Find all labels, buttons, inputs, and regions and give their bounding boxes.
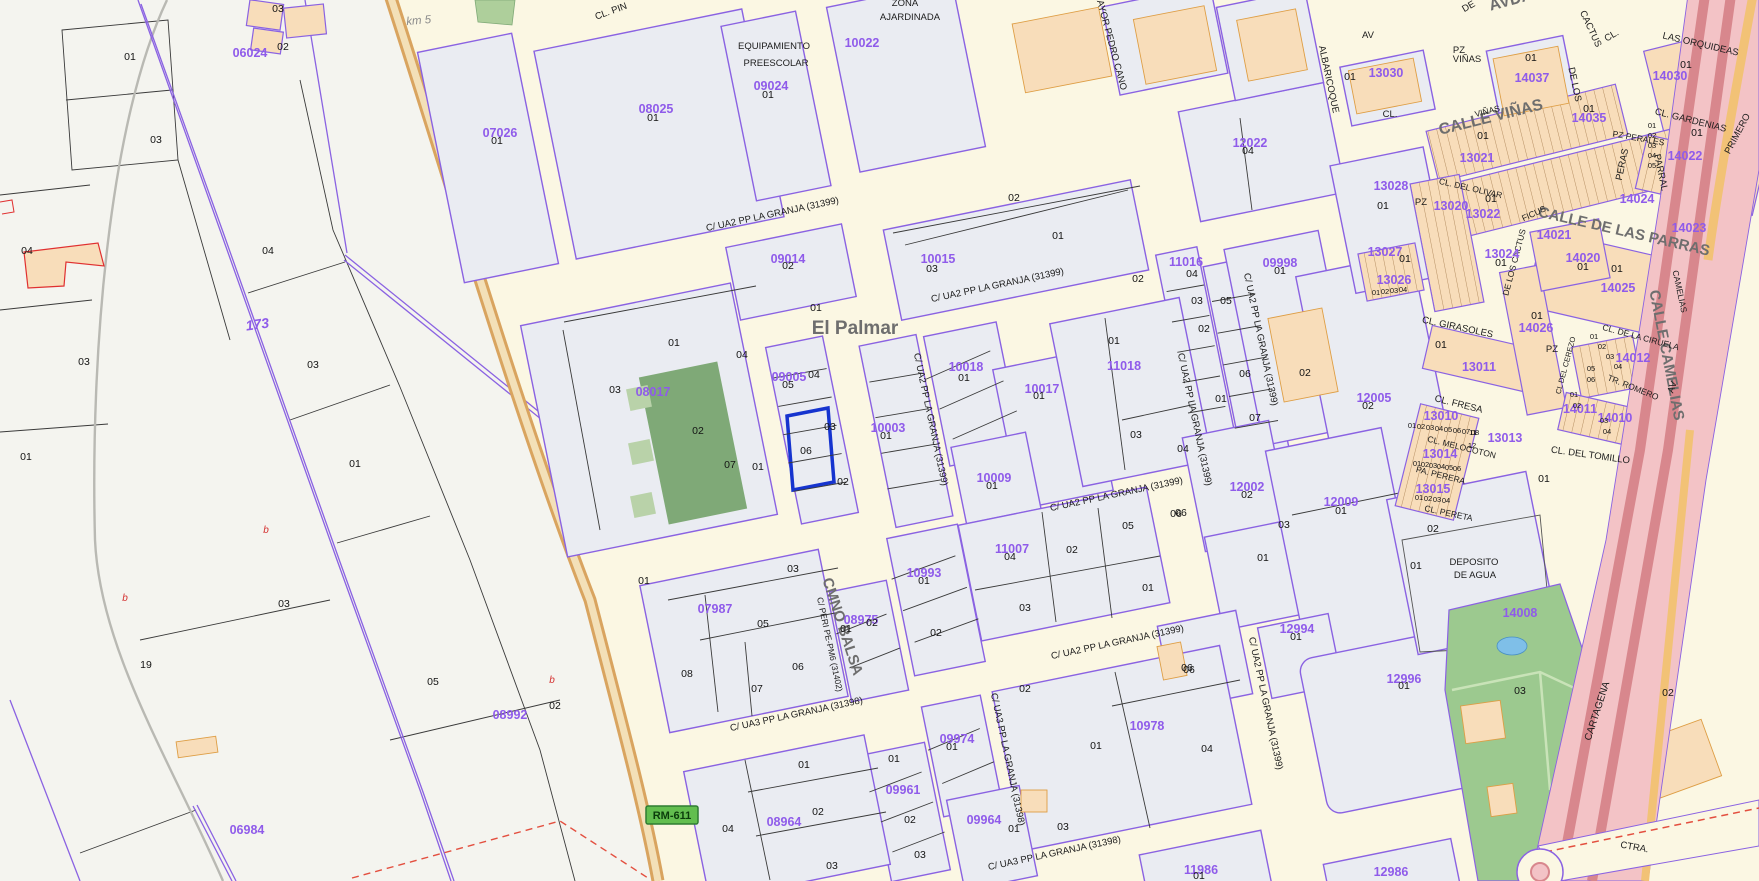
parcel-number-small-05[interactable]: 05 — [1587, 364, 1595, 373]
parcel-number-01[interactable]: 01 — [20, 451, 32, 463]
parcel-number-small-03[interactable]: 03 — [1390, 286, 1398, 295]
major-place-label-el-palmar: El Palmar — [812, 318, 899, 339]
parcel-number-06[interactable]: 06 — [1239, 368, 1251, 380]
block-code-label-08017[interactable]: 08017 — [636, 385, 671, 399]
parcel-number-08[interactable]: 08 — [681, 668, 693, 680]
block-code-label-13013[interactable]: 13013 — [1488, 431, 1523, 445]
block-code-label-14008[interactable]: 14008 — [1503, 606, 1538, 620]
parcel-number-small-06[interactable]: 06 — [1453, 464, 1461, 473]
block-code-label-08992[interactable]: 08992 — [493, 708, 528, 722]
block-code-label-09964[interactable]: 09964 — [967, 813, 1002, 827]
parcel-number-02[interactable]: 02 — [1299, 367, 1311, 379]
parcel-number-04[interactable]: 04 — [1177, 443, 1189, 455]
parcel-number-05[interactable]: 05 — [782, 379, 794, 391]
parcel-number-04[interactable]: 04 — [21, 245, 33, 257]
block-code-label-13028[interactable]: 13028 — [1374, 179, 1409, 193]
parcel-number-01[interactable]: 01 — [880, 430, 892, 442]
parcel-number-01[interactable]: 01 — [1008, 823, 1020, 835]
parcel-number-small-03[interactable]: 03 — [1600, 416, 1608, 425]
street-label-pz: PZ — [1415, 197, 1427, 208]
parcel-number-03[interactable]: 03 — [307, 359, 319, 371]
parcel-number-small-04[interactable]: 04 — [1399, 285, 1407, 294]
parcel-number-02[interactable]: 02 — [692, 425, 704, 437]
block-code-label-13014[interactable]: 13014 — [1423, 447, 1458, 461]
road-badge-rm611: RM-611 — [646, 806, 698, 824]
parcel-number-01[interactable]: 01 — [1691, 127, 1703, 139]
green-areas — [475, 0, 515, 25]
parcel-number-small-01[interactable]: 01 — [1372, 288, 1380, 297]
parcel-number-01[interactable]: 01 — [810, 302, 822, 314]
parcel-number-01[interactable]: 01 — [1531, 310, 1543, 322]
parcel-number-06[interactable]: 06 — [1181, 662, 1193, 674]
block-code-label-14037[interactable]: 14037 — [1515, 71, 1550, 85]
parcel-number-01[interactable]: 01 — [1538, 473, 1550, 485]
block-code-label-11016[interactable]: 11016 — [1169, 255, 1203, 269]
parcel-number-02[interactable]: 02 — [1066, 544, 1078, 556]
street-label-vi-as: VIÑAS — [1453, 54, 1482, 65]
parcel-number-small-05[interactable]: 05 — [1648, 161, 1656, 170]
parcel-number-01[interactable]: 01 — [1611, 263, 1623, 275]
parcel-number-01[interactable]: 01 — [1257, 552, 1269, 564]
parcel-number-01[interactable]: 01 — [1290, 631, 1302, 643]
street-label-ajardinada: AJARDINADA — [880, 12, 941, 23]
parcel-number-01[interactable]: 01 — [638, 575, 650, 587]
parcel-number-03[interactable]: 03 — [1019, 602, 1031, 614]
parcel-number-small-03[interactable]: 03 — [1426, 423, 1434, 432]
parcel-number-04[interactable]: 04 — [808, 369, 820, 381]
parcel-number-01[interactable]: 01 — [1577, 261, 1589, 273]
parcel-number-05[interactable]: 05 — [1122, 520, 1134, 532]
block-code-label-13010[interactable]: 13010 — [1424, 409, 1459, 423]
parcel-number-01[interactable]: 01 — [1495, 257, 1507, 269]
block-code-label-14023[interactable]: 14023 — [1672, 221, 1707, 235]
block-code-label-13030[interactable]: 13030 — [1369, 66, 1404, 80]
block-code-label-14021[interactable]: 14021 — [1537, 228, 1572, 242]
map-annotation-b: b — [263, 525, 269, 536]
block-code-label-14024[interactable]: 14024 — [1620, 192, 1655, 206]
parcel-number-02[interactable]: 02 — [837, 476, 849, 488]
parcel-number-02[interactable]: 02 — [1362, 400, 1374, 412]
parcel-number-01[interactable]: 01 — [762, 89, 774, 101]
street-label-deposito: DEPOSITO — [1450, 557, 1499, 568]
street-label-cl-: CL. — [1383, 109, 1398, 120]
parcel-number-02[interactable]: 02 — [1008, 192, 1020, 204]
parcel-number-02[interactable]: 02 — [782, 260, 794, 272]
parcel-number-02[interactable]: 02 — [1662, 687, 1674, 699]
parcel-number-small-01[interactable]: 01 — [1648, 121, 1656, 130]
parcel-number-small-01[interactable]: 01 — [1590, 332, 1598, 341]
parcel-number-small-02[interactable]: 02 — [1417, 422, 1425, 431]
block-code-label-13021[interactable]: 13021 — [1460, 151, 1495, 165]
parcel-number-03[interactable]: 03 — [1278, 519, 1290, 531]
parcel-number-01[interactable]: 01 — [1399, 253, 1411, 265]
parcel-number-small-05[interactable]: 05 — [1444, 425, 1452, 434]
parcel-number-02[interactable]: 02 — [866, 617, 878, 629]
parcel-number-01[interactable]: 01 — [124, 51, 136, 63]
street-label-equipamiento: EQUIPAMIENTO — [738, 41, 810, 52]
block-code-label-13022[interactable]: 13022 — [1466, 207, 1501, 221]
parcel-number-01[interactable]: 01 — [1033, 390, 1045, 402]
parcel-number-06[interactable]: 06 — [792, 661, 804, 673]
parcel-number-01[interactable]: 01 — [840, 623, 852, 635]
parcel-number-07[interactable]: 07 — [751, 683, 763, 695]
parcel-number-03[interactable]: 03 — [1057, 821, 1069, 833]
parcel-number-05[interactable]: 05 — [1220, 295, 1232, 307]
parcel-number-small-03[interactable]: 03 — [1606, 352, 1614, 361]
street-label-preescolar: PREESCOLAR — [744, 58, 809, 69]
block-code-label-13020[interactable]: 13020 — [1434, 199, 1469, 213]
pond — [1497, 637, 1527, 655]
parcel-number-01[interactable]: 01 — [1052, 230, 1064, 242]
parcel-number-03[interactable]: 03 — [926, 263, 938, 275]
parcel-number-small-04[interactable]: 04 — [1648, 151, 1656, 160]
block-code-label-06024[interactable]: 06024 — [233, 46, 268, 60]
parcel-number-07[interactable]: 07 — [724, 459, 736, 471]
parcel-number-small-06[interactable]: 06 — [1453, 426, 1461, 435]
parcel-number-small-02[interactable]: 02 — [1598, 342, 1606, 351]
parcel-number-01[interactable]: 01 — [668, 337, 680, 349]
parcel-number-01[interactable]: 01 — [1485, 193, 1497, 205]
parcel-number-01[interactable]: 01 — [1344, 71, 1356, 83]
parcel-number-01[interactable]: 01 — [1398, 680, 1410, 692]
parcel-number-small-04[interactable]: 04 — [1603, 427, 1611, 436]
parcel-number-01[interactable]: 01 — [798, 759, 810, 771]
parcel-number-06[interactable]: 06 — [1175, 507, 1187, 519]
parcel-number-04[interactable]: 04 — [1004, 551, 1016, 563]
parcel-number-01[interactable]: 01 — [1193, 870, 1205, 881]
parcel-number-01[interactable]: 01 — [1377, 200, 1389, 212]
parcel-number-04[interactable]: 04 — [262, 245, 274, 257]
parcel-number-02[interactable]: 02 — [904, 814, 916, 826]
parcel-number-02[interactable]: 02 — [1019, 683, 1031, 695]
block-code-label-11018[interactable]: 11018 — [1107, 359, 1141, 373]
parcel-number-small-11[interactable]: 11 — [1469, 428, 1477, 437]
parcel-number-03[interactable]: 03 — [787, 563, 799, 575]
parcel-number-02[interactable]: 02 — [930, 627, 942, 639]
parcel-number-02[interactable]: 02 — [1198, 323, 1210, 335]
parcel-number-03[interactable]: 03 — [1514, 685, 1526, 697]
parcel-number-01[interactable]: 01 — [1583, 103, 1595, 115]
parcel-number-02[interactable]: 02 — [277, 41, 289, 53]
parcel-number-03[interactable]: 03 — [278, 598, 290, 610]
parcel-number-03[interactable]: 03 — [1130, 429, 1142, 441]
parcel-number-small-01[interactable]: 01 — [1570, 390, 1578, 399]
parcel-number-small-04[interactable]: 04 — [1442, 496, 1450, 505]
parcel-number-01[interactable]: 01 — [918, 575, 930, 587]
map-annotation-b: b — [122, 593, 128, 604]
parcel-number-small-06[interactable]: 06 — [1587, 375, 1595, 384]
parcel-number-01[interactable]: 01 — [491, 135, 503, 147]
street-label-de-agua: DE AGUA — [1454, 570, 1497, 581]
parcel-number-01[interactable]: 01 — [1274, 265, 1286, 277]
parcel-number-01[interactable]: 01 — [1335, 505, 1347, 517]
parcel-number-small-03[interactable]: 03 — [1648, 141, 1656, 150]
block-code-label-06984[interactable]: 06984 — [230, 823, 265, 837]
parcel-number-01[interactable]: 01 — [349, 458, 361, 470]
block-code-label-14025[interactable]: 14025 — [1601, 281, 1636, 295]
parcel-number-04[interactable]: 04 — [736, 349, 748, 361]
parcel-number-04[interactable]: 04 — [1186, 268, 1198, 280]
parcel-number-small-01[interactable]: 01 — [1408, 421, 1416, 430]
parcel-number-06[interactable]: 06 — [800, 445, 812, 457]
parcel-number-01[interactable]: 01 — [1525, 52, 1537, 64]
parcel-number-01[interactable]: 01 — [1108, 335, 1120, 347]
parcel-number-07[interactable]: 07 — [1249, 412, 1261, 424]
parcel-number-small-03[interactable]: 03 — [1433, 495, 1441, 504]
parcel-number-03[interactable]: 03 — [1191, 295, 1203, 307]
parcel-number-02[interactable]: 02 — [1241, 489, 1253, 501]
parcel-number-05[interactable]: 05 — [427, 676, 439, 688]
block-code-label-10978[interactable]: 10978 — [1130, 719, 1165, 733]
block-code-label-10022[interactable]: 10022 — [845, 36, 880, 50]
parcel-number-03[interactable]: 03 — [150, 134, 162, 146]
map-annotation-km-5: km 5 — [406, 14, 432, 28]
parcel-number-03[interactable]: 03 — [609, 384, 621, 396]
cadastral-map-canvas[interactable]: RM-611 El PalmarCMNO BALSACALLE VIÑASAVD… — [0, 0, 1759, 881]
parcel-number-01[interactable]: 01 — [1410, 560, 1422, 572]
road-badge-label: RM-611 — [653, 810, 692, 822]
parcel-number-03[interactable]: 03 — [914, 849, 926, 861]
parcel-number-01[interactable]: 01 — [647, 112, 659, 124]
block-code-label-13027[interactable]: 13027 — [1368, 245, 1403, 259]
map-annotation-b: b — [549, 675, 555, 686]
parcel-number-small-04[interactable]: 04 — [1614, 362, 1622, 371]
block-code-label-14030[interactable]: 14030 — [1653, 69, 1688, 83]
parcel-number-01[interactable]: 01 — [1215, 393, 1227, 405]
parcel-number-05[interactable]: 05 — [757, 618, 769, 630]
parcel-number-small-02[interactable]: 02 — [1381, 287, 1389, 296]
parcel-number-19[interactable]: 19 — [140, 659, 152, 671]
parcel-number-02[interactable]: 02 — [812, 806, 824, 818]
parcel-number-01[interactable]: 01 — [888, 753, 900, 765]
park-top — [475, 0, 515, 25]
parcel-number-01[interactable]: 01 — [1477, 130, 1489, 142]
parcel-number-small-02[interactable]: 02 — [1573, 401, 1581, 410]
parcel-number-small-12[interactable]: 12 — [1468, 441, 1476, 450]
parcel-number-04[interactable]: 04 — [1242, 145, 1254, 157]
parcel-number-01[interactable]: 01 — [1090, 740, 1102, 752]
block-code-label-09961[interactable]: 09961 — [886, 783, 921, 797]
parcel-number-small-02[interactable]: 02 — [1648, 131, 1656, 140]
block-code-label-14026[interactable]: 14026 — [1519, 321, 1554, 335]
parcel-number-04[interactable]: 04 — [722, 823, 734, 835]
parcel-number-small-04[interactable]: 04 — [1435, 424, 1443, 433]
block-code-label-14022[interactable]: 14022 — [1668, 149, 1703, 163]
parcel-number-01[interactable]: 01 — [1142, 582, 1154, 594]
street-label-pz: PZ — [1546, 344, 1558, 355]
parcel-number-small-01[interactable]: 01 — [1415, 493, 1423, 502]
street-label-zona: ZONA — [892, 0, 919, 9]
block-code-label-08964[interactable]: 08964 — [767, 815, 802, 829]
parcel-number-01[interactable]: 01 — [946, 741, 958, 753]
parcel-number-01[interactable]: 01 — [1680, 59, 1692, 71]
block-code-label-12986[interactable]: 12986 — [1374, 865, 1409, 879]
parcel-number-03[interactable]: 03 — [824, 421, 836, 433]
parcel-number-03[interactable]: 03 — [78, 356, 90, 368]
block-code-label-13011[interactable]: 13011 — [1462, 360, 1496, 374]
map-annotation-173: 173 — [245, 314, 271, 333]
parcel-number-01[interactable]: 01 — [958, 372, 970, 384]
parcel-number-small-02[interactable]: 02 — [1424, 494, 1432, 503]
parcel-number-01[interactable]: 01 — [752, 461, 764, 473]
parcel-number-04[interactable]: 04 — [1201, 743, 1213, 755]
parcel-number-02[interactable]: 02 — [1427, 523, 1439, 535]
block-code-label-07987[interactable]: 07987 — [698, 602, 733, 616]
map-viewport[interactable]: RM-611 El PalmarCMNO BALSACALLE VIÑASAVD… — [0, 0, 1759, 881]
parcel-number-03[interactable]: 03 — [272, 3, 284, 15]
street-label-av: AV — [1362, 30, 1375, 41]
parcel-number-03[interactable]: 03 — [826, 860, 838, 872]
parcel-number-02[interactable]: 02 — [1132, 273, 1144, 285]
parcel-number-01[interactable]: 01 — [1435, 339, 1447, 351]
parcel-number-01[interactable]: 01 — [986, 480, 998, 492]
parcel-number-02[interactable]: 02 — [549, 700, 561, 712]
